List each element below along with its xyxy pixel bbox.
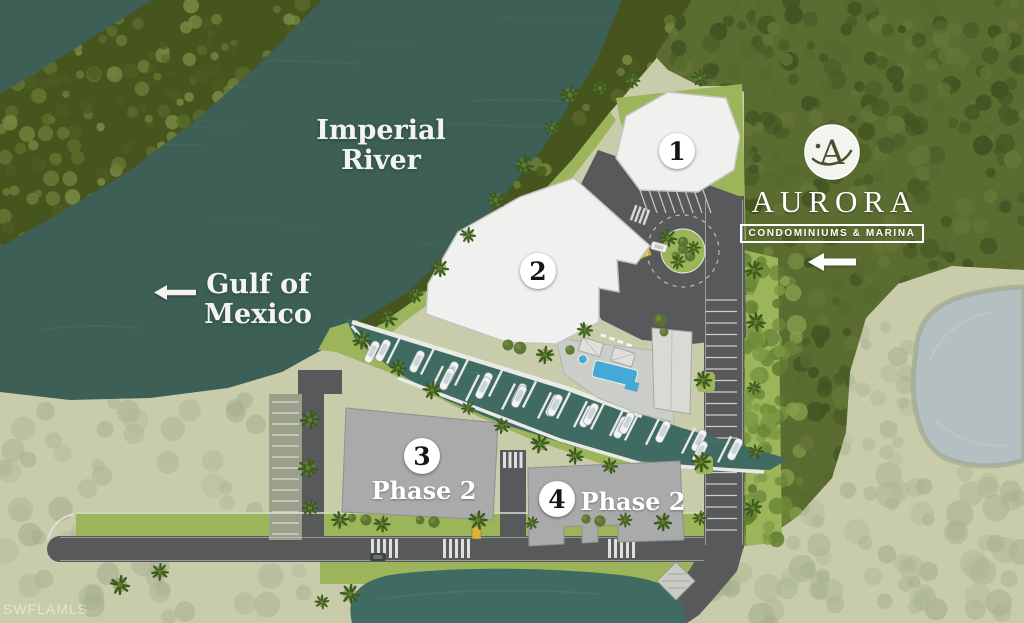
- building-4-marker: 4: [539, 481, 575, 517]
- building-2-number: 2: [529, 257, 546, 286]
- imperial-river-label: Imperial River: [303, 116, 459, 176]
- svg-text:A: A: [819, 133, 845, 173]
- aurora-logo: A AURORA CONDOMINIUMS & MARINA: [738, 124, 926, 272]
- car: [370, 553, 386, 561]
- building-4-phase-label: Phase 2: [578, 487, 688, 516]
- gulf-of-mexico-label: Gulf of Mexico: [154, 270, 313, 329]
- building-3-number: 3: [413, 442, 430, 471]
- retention-pond: [913, 287, 1024, 466]
- aurora-monogram: A: [804, 124, 860, 180]
- logo-tagline: CONDOMINIUMS & MARINA: [740, 224, 925, 243]
- building-3-marker: 3: [404, 438, 440, 474]
- logo-name: AURORA: [746, 184, 919, 220]
- gulf-of-mexico-text: Gulf of Mexico: [203, 270, 313, 329]
- building-4-number: 4: [548, 485, 565, 514]
- building-2-marker: 2: [520, 253, 556, 289]
- left-arrow-icon: [154, 285, 196, 300]
- building-3-phase-label: Phase 2: [354, 476, 494, 505]
- building-1-marker: 1: [659, 133, 695, 169]
- watermark: SWFLAMLS: [3, 601, 88, 617]
- building-1-number: 1: [668, 137, 685, 166]
- site-plan-map: Imperial River Gulf of Mexico 1 2 3 4 Ph…: [0, 0, 1024, 623]
- entrance-left-arrow-icon: [808, 252, 856, 272]
